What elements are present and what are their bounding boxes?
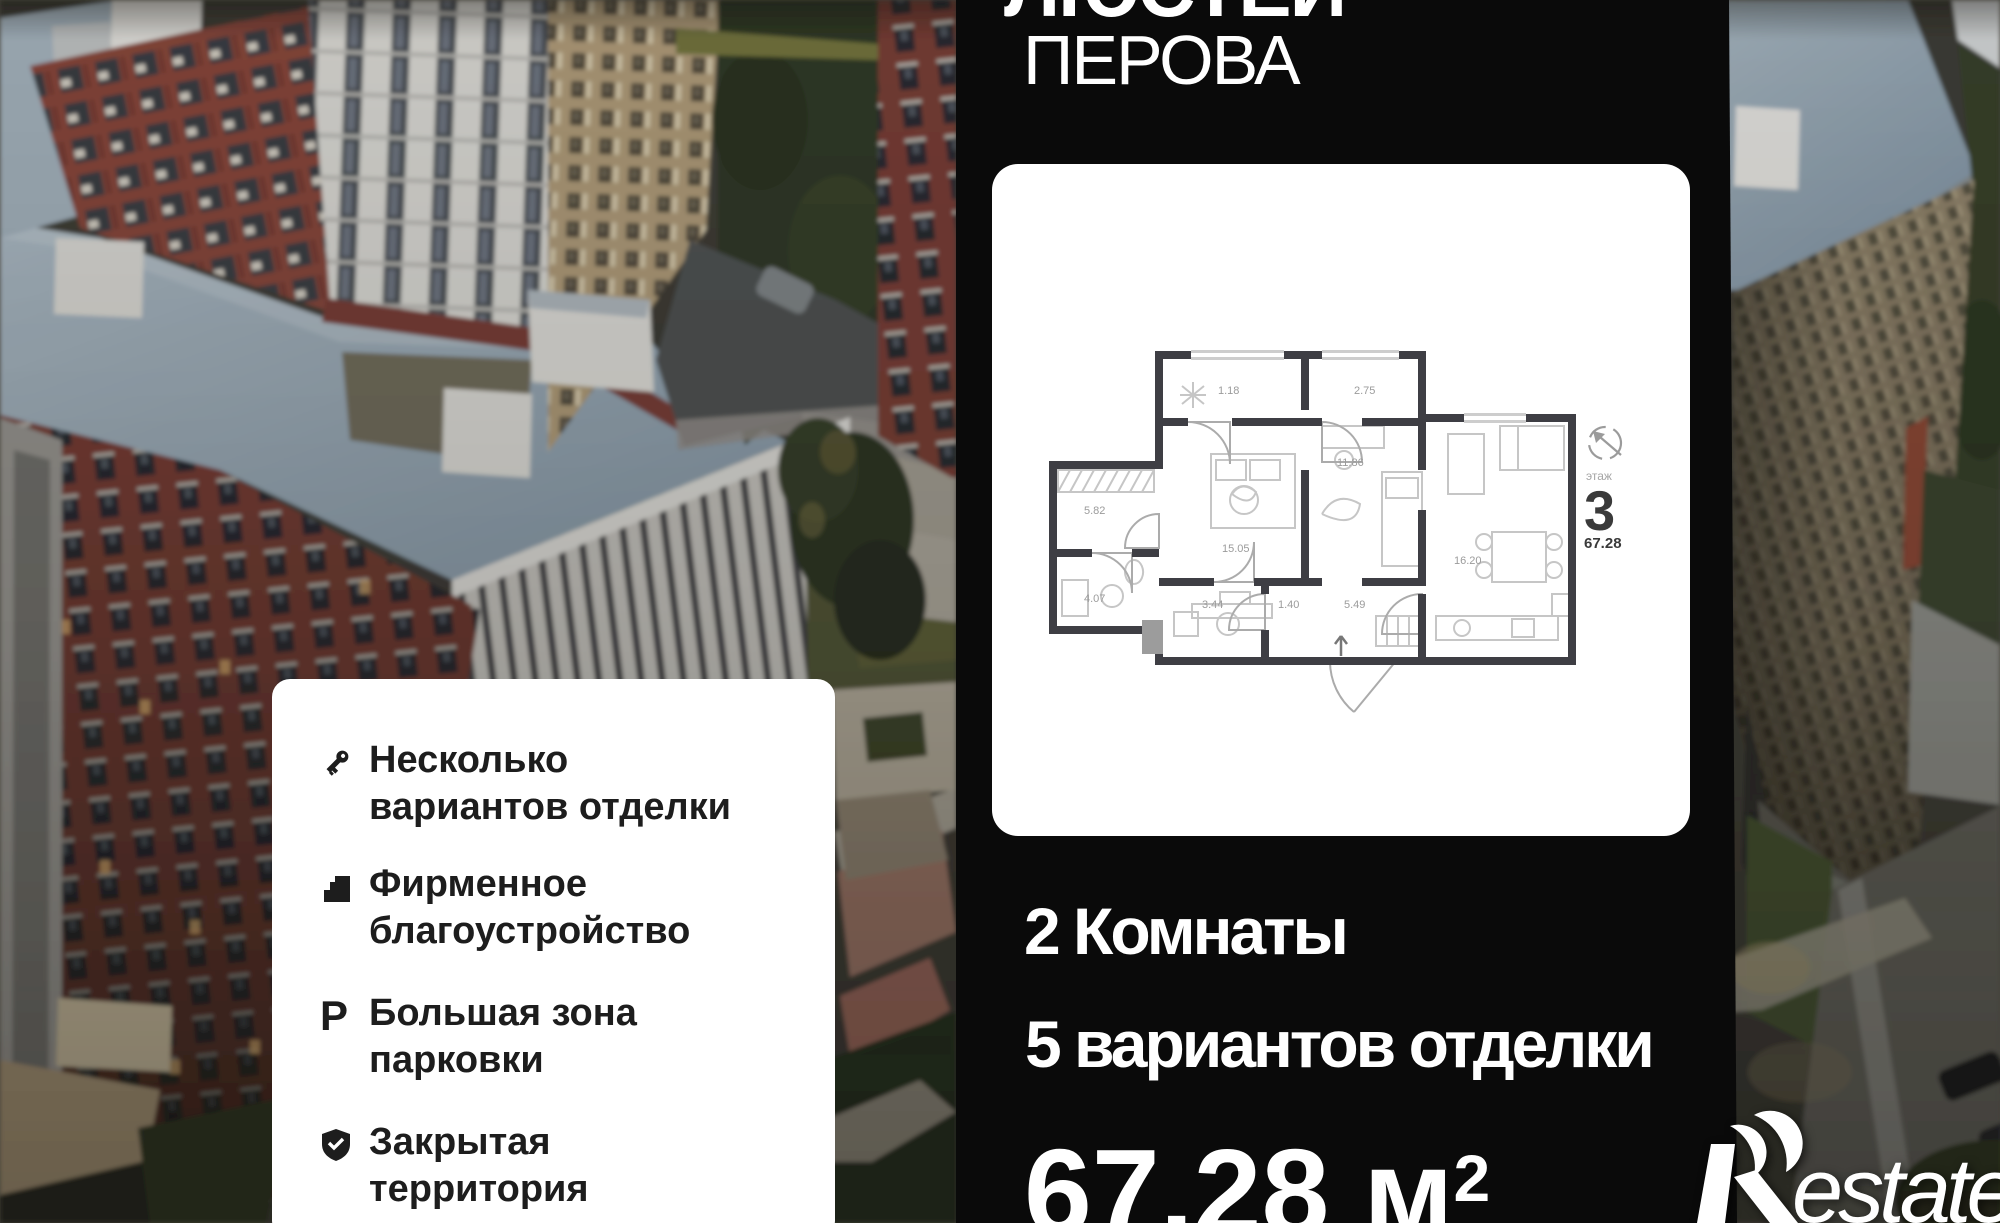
svg-text:3: 3 [1584,479,1615,542]
svg-text:16.20: 16.20 [1454,555,1482,567]
svg-text:3.44: 3.44 [1202,599,1223,611]
svg-text:5.49: 5.49 [1344,599,1365,611]
svg-text:1.40: 1.40 [1278,599,1299,611]
svg-text:1.18: 1.18 [1218,385,1239,397]
svg-text:11.86: 11.86 [1337,457,1364,469]
svg-text:4.07: 4.07 [1084,593,1105,605]
svg-text:2.75: 2.75 [1354,385,1375,397]
svg-text:estate: estate [1792,1140,2000,1223]
svg-text:67.28: 67.28 [1584,535,1622,552]
svg-text:5.82: 5.82 [1084,505,1105,517]
svg-text:15.05: 15.05 [1222,543,1250,555]
